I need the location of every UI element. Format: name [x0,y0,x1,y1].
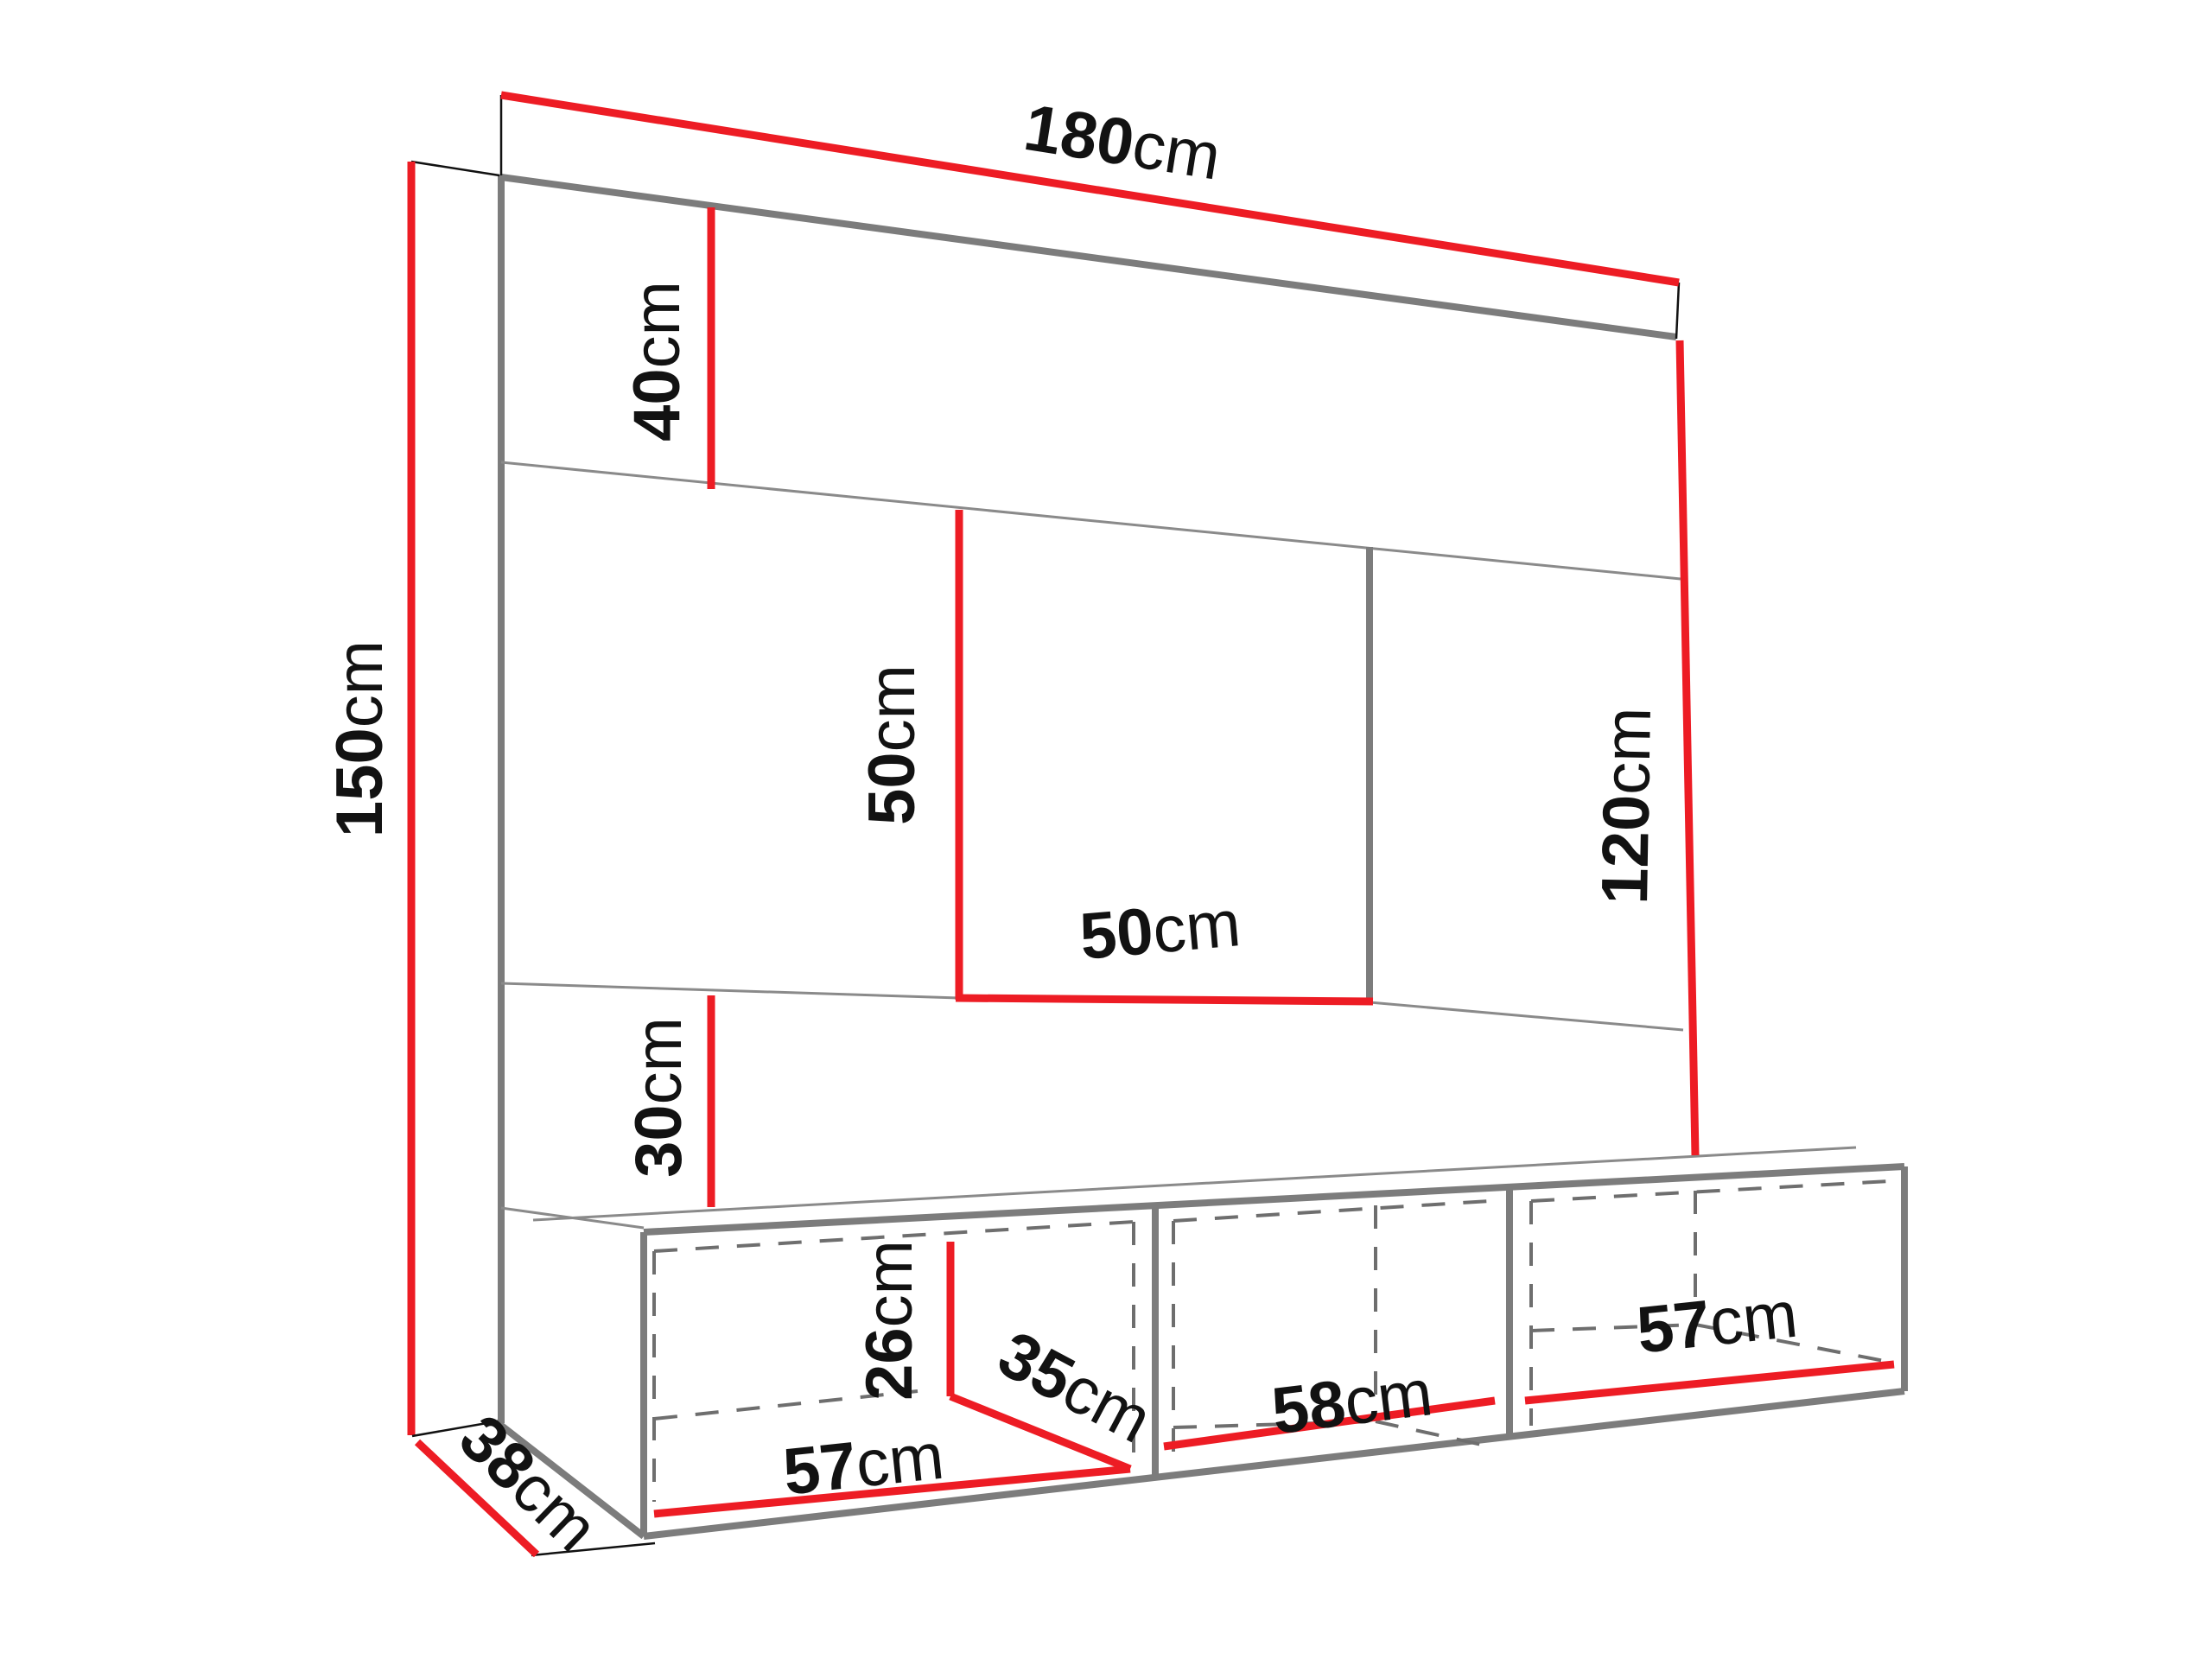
dim-unit: cm [622,1017,696,1104]
label-cabinet-inner-depth: 35cm [987,1317,1163,1457]
dim-value: 57 [1633,1287,1713,1367]
label-niche-height: 50cm [855,664,929,825]
dim-unit: cm [620,281,694,368]
dim-value: 180 [1020,91,1140,181]
dim-value: 26 [853,1327,926,1401]
dim-unit: cm [853,1420,948,1502]
label-bottom-panel-height: 30cm [622,1017,696,1178]
cabinet-top-back-edge [533,1147,1856,1220]
ext-line-width-right [1676,283,1679,339]
label-compartment-left-width: 57cm [779,1420,947,1510]
diagram-page: 180cm 40cm 150cm 50cm 50cm 120cm 30cm 26… [0,0,2212,1659]
dim-line-right-height [1680,340,1695,1155]
dim-unit: cm [1340,1356,1436,1440]
dim-line-niche-width [956,998,1373,1001]
dim-value: 120 [1588,794,1663,905]
dim-value: 40 [620,368,694,442]
dim-value: 50 [855,752,929,825]
dim-value: 150 [323,728,397,837]
dim-unit: cm [1128,108,1225,194]
dim-value: 50 [1077,894,1156,974]
shelf-line-lower-left [501,983,959,998]
dim-unit: cm [1590,707,1665,796]
dim-unit: cm [323,640,397,728]
dim-value: 58 [1268,1367,1349,1449]
dim-value: 30 [622,1104,696,1178]
shelf-line-upper [501,462,1681,579]
label-total-height: 150cm [323,640,397,837]
dim-unit: cm [855,664,929,752]
shelf-line-lower-right [1370,1002,1683,1030]
label-compartment-right-width: 57cm [1633,1278,1801,1368]
dim-unit: cm [1150,887,1243,968]
label-cabinet-height: 26cm [853,1240,926,1401]
label-right-height: 120cm [1588,707,1665,906]
label-niche-width: 50cm [1077,887,1243,974]
label-compartment-middle-width: 58cm [1268,1356,1436,1448]
dim-value: 57 [779,1428,860,1509]
cabinet-top-front-edge [644,1166,1904,1232]
furniture-dimension-drawing: 180cm 40cm 150cm 50cm 50cm 120cm 30cm 26… [0,0,2212,1659]
dimension-labels: 180cm 40cm 150cm 50cm 50cm 120cm 30cm 26… [323,91,1801,1566]
dim-unit: cm [853,1240,926,1327]
label-top-panel-height: 40cm [620,281,694,442]
dim-line-compartment-right [1525,1364,1894,1401]
dim-unit: cm [1707,1278,1802,1360]
ext-line-height-top [411,162,499,175]
